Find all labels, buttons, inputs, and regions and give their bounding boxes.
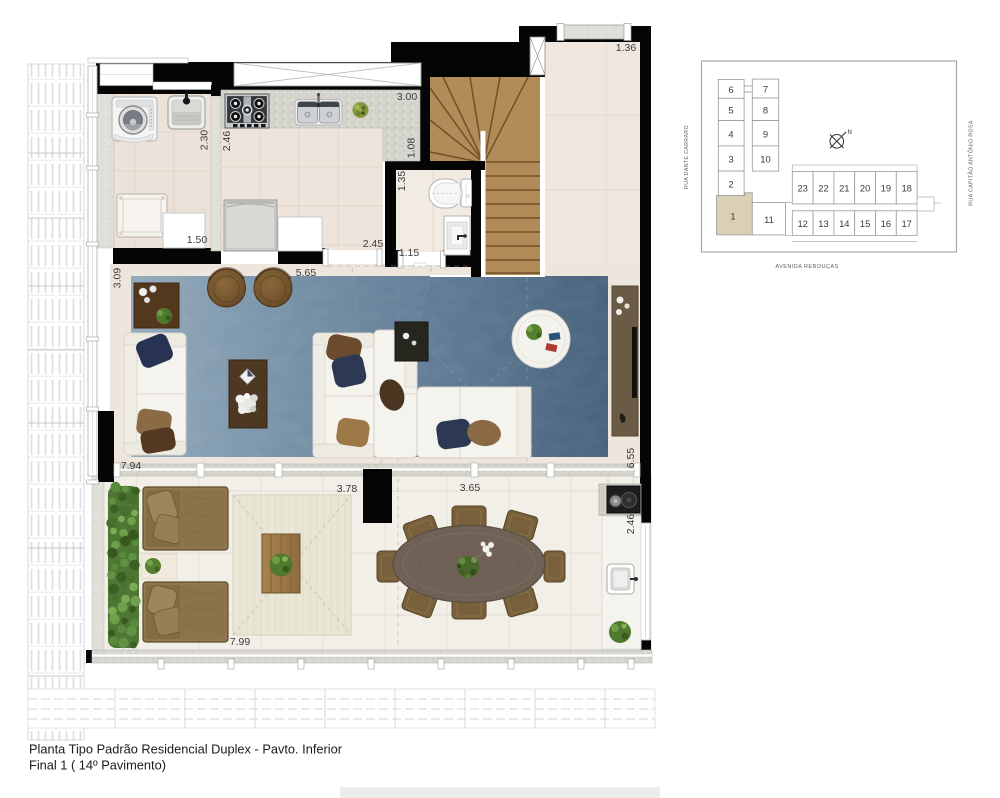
svg-text:7.94: 7.94 <box>121 460 142 472</box>
svg-text:14: 14 <box>839 218 849 229</box>
svg-text:1.35: 1.35 <box>396 171 408 192</box>
svg-text:7: 7 <box>763 84 768 95</box>
svg-text:18: 18 <box>901 183 911 194</box>
svg-text:13: 13 <box>818 218 828 229</box>
svg-text:AVENIDA REBOUÇAS: AVENIDA REBOUÇAS <box>775 264 838 270</box>
svg-text:2.45: 2.45 <box>363 238 384 250</box>
svg-text:8: 8 <box>763 105 768 116</box>
svg-text:6.55: 6.55 <box>625 448 637 469</box>
svg-text:RUA DANTE CARRARO: RUA DANTE CARRARO <box>684 125 690 189</box>
svg-text:7.99: 7.99 <box>230 636 251 648</box>
svg-text:2.30: 2.30 <box>199 130 211 151</box>
svg-text:5: 5 <box>728 105 733 116</box>
svg-text:19: 19 <box>881 183 891 194</box>
svg-text:1.08: 1.08 <box>406 138 418 159</box>
svg-text:N: N <box>848 130 852 136</box>
svg-text:3: 3 <box>728 154 733 165</box>
svg-text:4: 4 <box>728 129 733 140</box>
svg-text:3.09: 3.09 <box>112 268 124 289</box>
svg-text:Final 1 ( 14º Pavimento): Final 1 ( 14º Pavimento) <box>29 758 166 773</box>
svg-text:5.65: 5.65 <box>296 267 317 279</box>
svg-text:16: 16 <box>881 218 891 229</box>
svg-text:2: 2 <box>728 179 733 190</box>
svg-text:12: 12 <box>797 218 807 229</box>
svg-text:RUA CAPITÃO ANTÔNIO ROSA: RUA CAPITÃO ANTÔNIO ROSA <box>968 120 975 206</box>
svg-text:1.50: 1.50 <box>187 234 208 246</box>
svg-text:17: 17 <box>901 218 911 229</box>
svg-text:20: 20 <box>860 183 870 194</box>
svg-text:21: 21 <box>839 183 849 194</box>
svg-text:1.15: 1.15 <box>399 247 420 259</box>
svg-text:10: 10 <box>760 154 770 165</box>
svg-text:15: 15 <box>860 218 870 229</box>
svg-text:3.00: 3.00 <box>397 91 418 103</box>
svg-text:2.46: 2.46 <box>625 514 637 535</box>
svg-text:11: 11 <box>764 214 774 225</box>
svg-text:23: 23 <box>797 183 807 194</box>
svg-text:1.36: 1.36 <box>616 42 637 54</box>
svg-text:6: 6 <box>728 84 733 95</box>
svg-text:3.65: 3.65 <box>460 482 481 494</box>
svg-text:3.78: 3.78 <box>337 483 358 495</box>
svg-text:Planta Tipo Padrão Residencial: Planta Tipo Padrão Residencial Duplex - … <box>29 742 343 757</box>
svg-text:22: 22 <box>818 183 828 194</box>
svg-text:2.46: 2.46 <box>221 131 233 152</box>
svg-text:1: 1 <box>730 211 735 222</box>
svg-text:9: 9 <box>763 129 768 140</box>
